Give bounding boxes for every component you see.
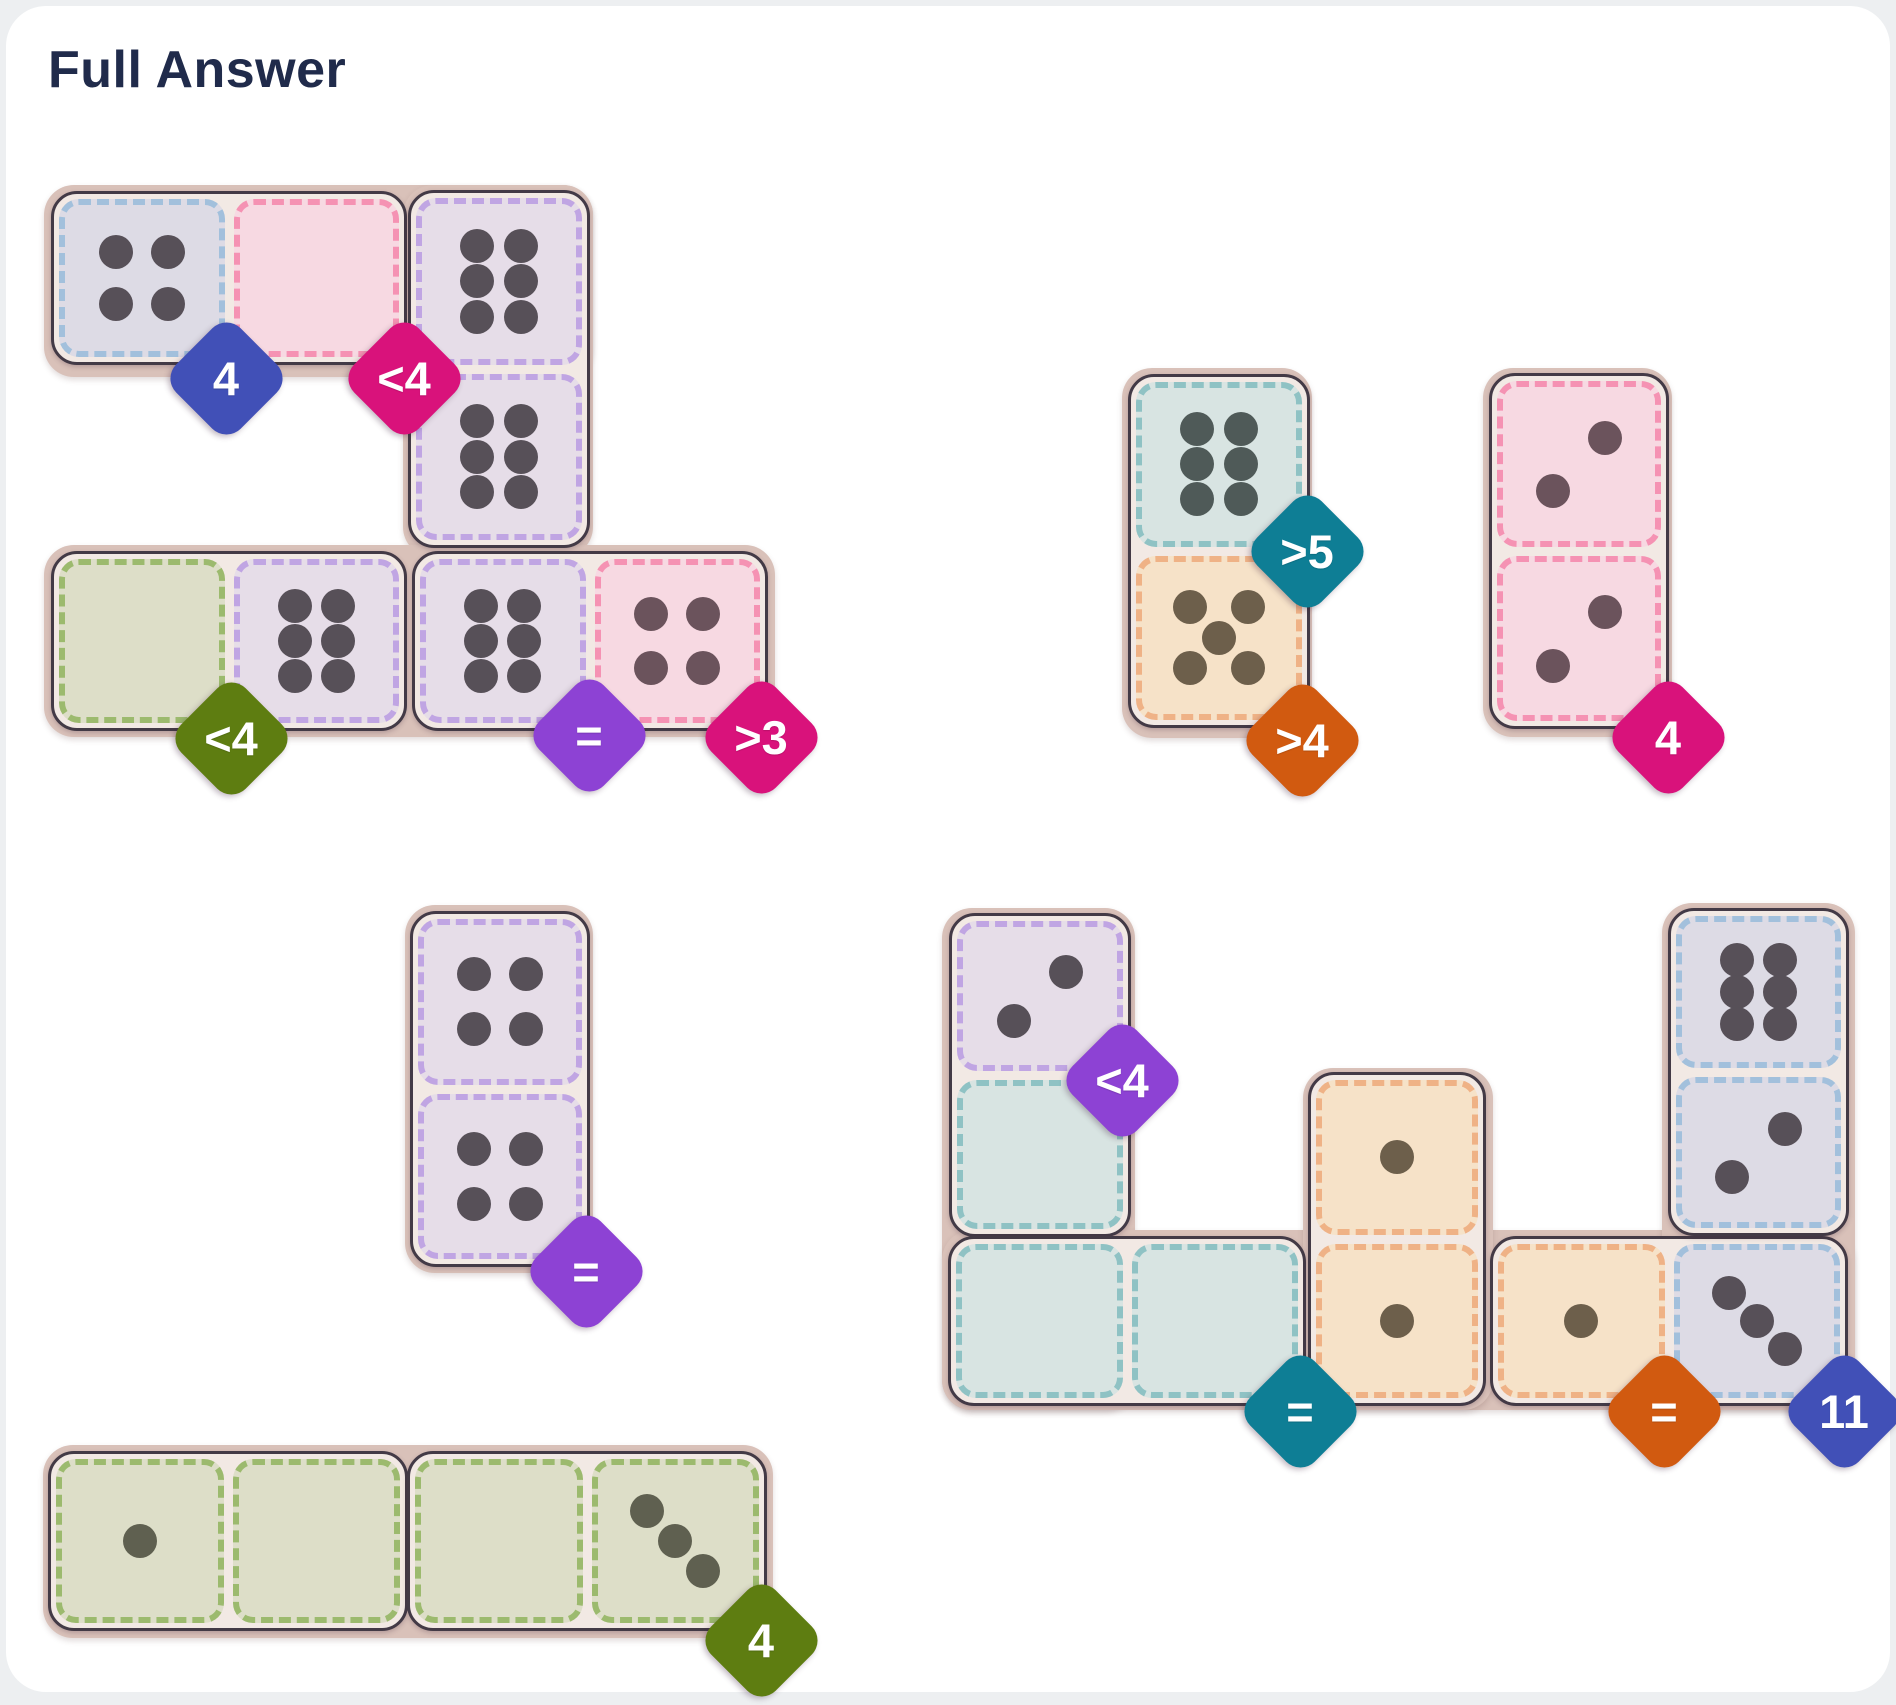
pip-dot bbox=[509, 1132, 543, 1166]
badge-label: >5 bbox=[1242, 486, 1372, 616]
domino-tray bbox=[1662, 903, 1855, 1410]
pip-dot bbox=[1715, 1160, 1749, 1194]
badge-label: 4 bbox=[696, 1575, 826, 1705]
pip-dot bbox=[1763, 1007, 1797, 1041]
badge-diamond-shape bbox=[162, 314, 291, 443]
pip-dot bbox=[1720, 1007, 1754, 1041]
badge-diamond-shape bbox=[167, 674, 296, 803]
pip-dot bbox=[1224, 482, 1258, 516]
domino-cell-2-pips bbox=[1497, 556, 1661, 722]
pip-dot bbox=[1536, 649, 1570, 683]
constraint-badge: <4 bbox=[339, 313, 469, 443]
pip-dot bbox=[99, 287, 133, 321]
constraint-badge: >4 bbox=[1237, 675, 1367, 805]
pip-dot bbox=[686, 651, 720, 685]
puzzle-group-top-left: 4<4<4=>3 bbox=[0, 0, 1896, 1698]
domino-cell-4-pips bbox=[59, 199, 225, 357]
board: 4<4<4=>3>5>44=4<4==11 bbox=[0, 0, 1896, 1698]
pip-dot bbox=[457, 957, 491, 991]
constraint-badge: <4 bbox=[1057, 1015, 1187, 1145]
domino bbox=[407, 1451, 767, 1631]
pip-dot bbox=[123, 1524, 157, 1558]
domino-cell-4-pips bbox=[595, 559, 761, 723]
constraint-badge: 4 bbox=[696, 1575, 826, 1705]
pip-dot bbox=[504, 229, 538, 263]
domino-tray bbox=[942, 1230, 1855, 1410]
puzzle-group-bottom-right: <4==11 bbox=[0, 0, 1896, 1698]
domino-cell-4-pips bbox=[418, 1094, 582, 1260]
pip-dot bbox=[460, 229, 494, 263]
domino-cell-0-pips bbox=[957, 1080, 1123, 1230]
badge-diamond-shape bbox=[1600, 1347, 1729, 1476]
badge-diamond-shape bbox=[522, 1207, 651, 1336]
badge-diamond-shape bbox=[1243, 487, 1372, 616]
domino-cell-2-pips bbox=[1497, 381, 1661, 547]
domino-cell-0-pips bbox=[233, 1459, 401, 1623]
domino-tray bbox=[1122, 368, 1312, 738]
domino-cell-1-pips bbox=[1316, 1080, 1478, 1235]
pip-dot bbox=[1180, 482, 1214, 516]
pip-dot bbox=[1224, 447, 1258, 481]
pip-dot bbox=[1763, 975, 1797, 1009]
badge-label: >4 bbox=[1237, 675, 1367, 805]
domino-tray bbox=[1483, 368, 1672, 737]
pip-dot bbox=[504, 264, 538, 298]
pip-dot bbox=[460, 300, 494, 334]
pip-dot bbox=[457, 1187, 491, 1221]
pip-dot bbox=[457, 1132, 491, 1166]
pip-dot bbox=[504, 475, 538, 509]
badge-label: <4 bbox=[166, 673, 296, 803]
pip-dot bbox=[507, 624, 541, 658]
pip-dot bbox=[464, 659, 498, 693]
pip-dot bbox=[1588, 595, 1622, 629]
pip-dot bbox=[278, 624, 312, 658]
badge-diamond-shape bbox=[340, 314, 469, 443]
pip-dot bbox=[686, 597, 720, 631]
pip-dot bbox=[1173, 651, 1207, 685]
domino bbox=[48, 1451, 408, 1631]
domino-cell-1-pips bbox=[1316, 1244, 1478, 1399]
pip-dot bbox=[1231, 651, 1265, 685]
pip-dot bbox=[1712, 1276, 1746, 1310]
domino-cell-6-pips bbox=[1136, 382, 1302, 547]
pip-dot bbox=[278, 659, 312, 693]
domino-cell-6-pips bbox=[1676, 916, 1841, 1068]
pip-dot bbox=[151, 287, 185, 321]
domino bbox=[1668, 908, 1849, 1236]
domino bbox=[51, 191, 407, 365]
pip-dot bbox=[1763, 943, 1797, 977]
domino bbox=[1489, 373, 1669, 729]
domino-cell-5-pips bbox=[1136, 556, 1302, 721]
domino bbox=[412, 551, 768, 731]
badge-label: = bbox=[1235, 1346, 1365, 1476]
domino-tray bbox=[942, 908, 1135, 1410]
pip-dot bbox=[504, 404, 538, 438]
pip-dot bbox=[658, 1524, 692, 1558]
pip-dot bbox=[1180, 447, 1214, 481]
domino-tray bbox=[44, 185, 593, 377]
pip-dot bbox=[1588, 421, 1622, 455]
pip-dot bbox=[504, 440, 538, 474]
pip-dot bbox=[1768, 1332, 1802, 1366]
domino bbox=[408, 190, 590, 548]
pip-dot bbox=[686, 1554, 720, 1588]
badge-diamond-shape bbox=[1238, 676, 1367, 805]
pip-dot bbox=[504, 300, 538, 334]
pip-dot bbox=[278, 589, 312, 623]
badge-label: <4 bbox=[339, 313, 469, 443]
domino bbox=[949, 913, 1131, 1237]
pip-dot bbox=[507, 589, 541, 623]
domino bbox=[410, 911, 590, 1267]
pip-dot bbox=[460, 264, 494, 298]
domino-cell-6-pips bbox=[416, 198, 582, 365]
badge-label: 4 bbox=[161, 313, 291, 443]
domino-cell-2-pips bbox=[1676, 1077, 1841, 1229]
domino-cell-6-pips bbox=[234, 559, 400, 723]
domino-cell-0-pips bbox=[234, 199, 400, 357]
constraint-badge: >3 bbox=[696, 672, 826, 802]
pip-dot bbox=[509, 1187, 543, 1221]
domino-tray bbox=[1303, 1068, 1493, 1410]
domino-tray bbox=[44, 545, 775, 737]
pip-dot bbox=[1380, 1140, 1414, 1174]
domino-cell-1-pips bbox=[1498, 1244, 1665, 1398]
pip-dot bbox=[1224, 412, 1258, 446]
pip-dot bbox=[507, 659, 541, 693]
domino-cell-0-pips bbox=[59, 559, 225, 723]
domino-cell-1-pips bbox=[56, 1459, 224, 1623]
pip-dot bbox=[1768, 1112, 1802, 1146]
badge-diamond-shape bbox=[697, 1576, 826, 1705]
pip-dot bbox=[321, 659, 355, 693]
badge-diamond-shape bbox=[1236, 1347, 1365, 1476]
pip-dot bbox=[99, 235, 133, 269]
pip-dot bbox=[321, 589, 355, 623]
pip-dot bbox=[460, 404, 494, 438]
pip-dot bbox=[1380, 1304, 1414, 1338]
domino bbox=[51, 551, 407, 731]
pip-dot bbox=[634, 597, 668, 631]
pip-dot bbox=[464, 589, 498, 623]
pip-dot bbox=[1720, 943, 1754, 977]
constraint-badge: 4 bbox=[1603, 672, 1733, 802]
pip-dot bbox=[1720, 975, 1754, 1009]
constraint-badge: 11 bbox=[1779, 1346, 1896, 1476]
pip-dot bbox=[321, 624, 355, 658]
badge-diamond-shape bbox=[1604, 673, 1733, 802]
domino bbox=[1490, 1236, 1848, 1406]
pip-dot bbox=[1231, 590, 1265, 624]
pip-dot bbox=[1049, 955, 1083, 989]
badge-label: 11 bbox=[1779, 1346, 1896, 1476]
constraint-badge: 4 bbox=[161, 313, 291, 443]
pip-dot bbox=[457, 1012, 491, 1046]
pip-dot bbox=[1202, 621, 1236, 655]
badge-label: = bbox=[1599, 1346, 1729, 1476]
pip-dot bbox=[509, 1012, 543, 1046]
constraint-badge: <4 bbox=[166, 673, 296, 803]
constraint-badge: = bbox=[1599, 1346, 1729, 1476]
badge-label: 4 bbox=[1603, 672, 1733, 802]
domino bbox=[1128, 374, 1310, 728]
domino-cell-3-pips bbox=[592, 1459, 760, 1623]
constraint-badge: = bbox=[524, 670, 654, 800]
pip-dot bbox=[1173, 590, 1207, 624]
pip-dot bbox=[997, 1004, 1031, 1038]
badge-label: = bbox=[524, 670, 654, 800]
constraint-badge: = bbox=[521, 1206, 651, 1336]
constraint-badge: >5 bbox=[1242, 486, 1372, 616]
pip-dot bbox=[151, 235, 185, 269]
puzzle-group-top-right: >5>44 bbox=[0, 0, 1896, 1698]
domino-tray bbox=[403, 185, 593, 557]
badge-label: = bbox=[521, 1206, 651, 1336]
badge-diamond-shape bbox=[1780, 1347, 1896, 1476]
pip-dot bbox=[1180, 412, 1214, 446]
pip-dot bbox=[509, 957, 543, 991]
domino-cell-6-pips bbox=[416, 374, 582, 541]
domino-cell-0-pips bbox=[415, 1459, 583, 1623]
puzzle-group-middle-left: = bbox=[0, 0, 1896, 1698]
pip-dot bbox=[1564, 1304, 1598, 1338]
puzzle-group-bottom-left: 4 bbox=[0, 0, 1896, 1698]
domino-cell-4-pips bbox=[418, 919, 582, 1085]
domino-tray bbox=[43, 1445, 773, 1638]
badge-label: <4 bbox=[1057, 1015, 1187, 1145]
badge-diamond-shape bbox=[1058, 1016, 1187, 1145]
domino-cell-3-pips bbox=[1674, 1244, 1841, 1398]
pip-dot bbox=[464, 624, 498, 658]
domino bbox=[948, 1236, 1306, 1406]
domino-tray bbox=[405, 905, 593, 1273]
pip-dot bbox=[634, 651, 668, 685]
domino-cell-6-pips bbox=[420, 559, 586, 723]
constraint-badge: = bbox=[1235, 1346, 1365, 1476]
badge-label: >3 bbox=[696, 672, 826, 802]
pip-dot bbox=[630, 1494, 664, 1528]
pip-dot bbox=[460, 475, 494, 509]
domino bbox=[1308, 1072, 1486, 1406]
pip-dot bbox=[1536, 474, 1570, 508]
domino-cell-0-pips bbox=[1132, 1244, 1299, 1398]
domino-cell-2-pips bbox=[957, 921, 1123, 1071]
domino-cell-0-pips bbox=[956, 1244, 1123, 1398]
badge-diamond-shape bbox=[525, 671, 654, 800]
pip-dot bbox=[460, 440, 494, 474]
badge-diamond-shape bbox=[697, 673, 826, 802]
pip-dot bbox=[1740, 1304, 1774, 1338]
